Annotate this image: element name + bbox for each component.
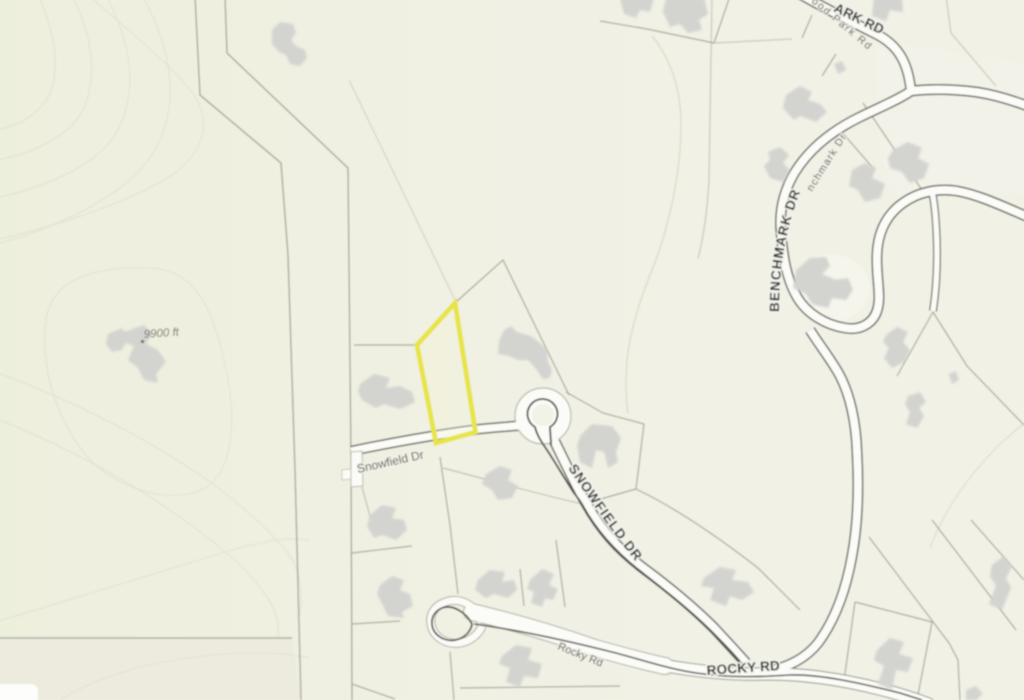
- svg-text:9900 ft: 9900 ft: [143, 327, 180, 341]
